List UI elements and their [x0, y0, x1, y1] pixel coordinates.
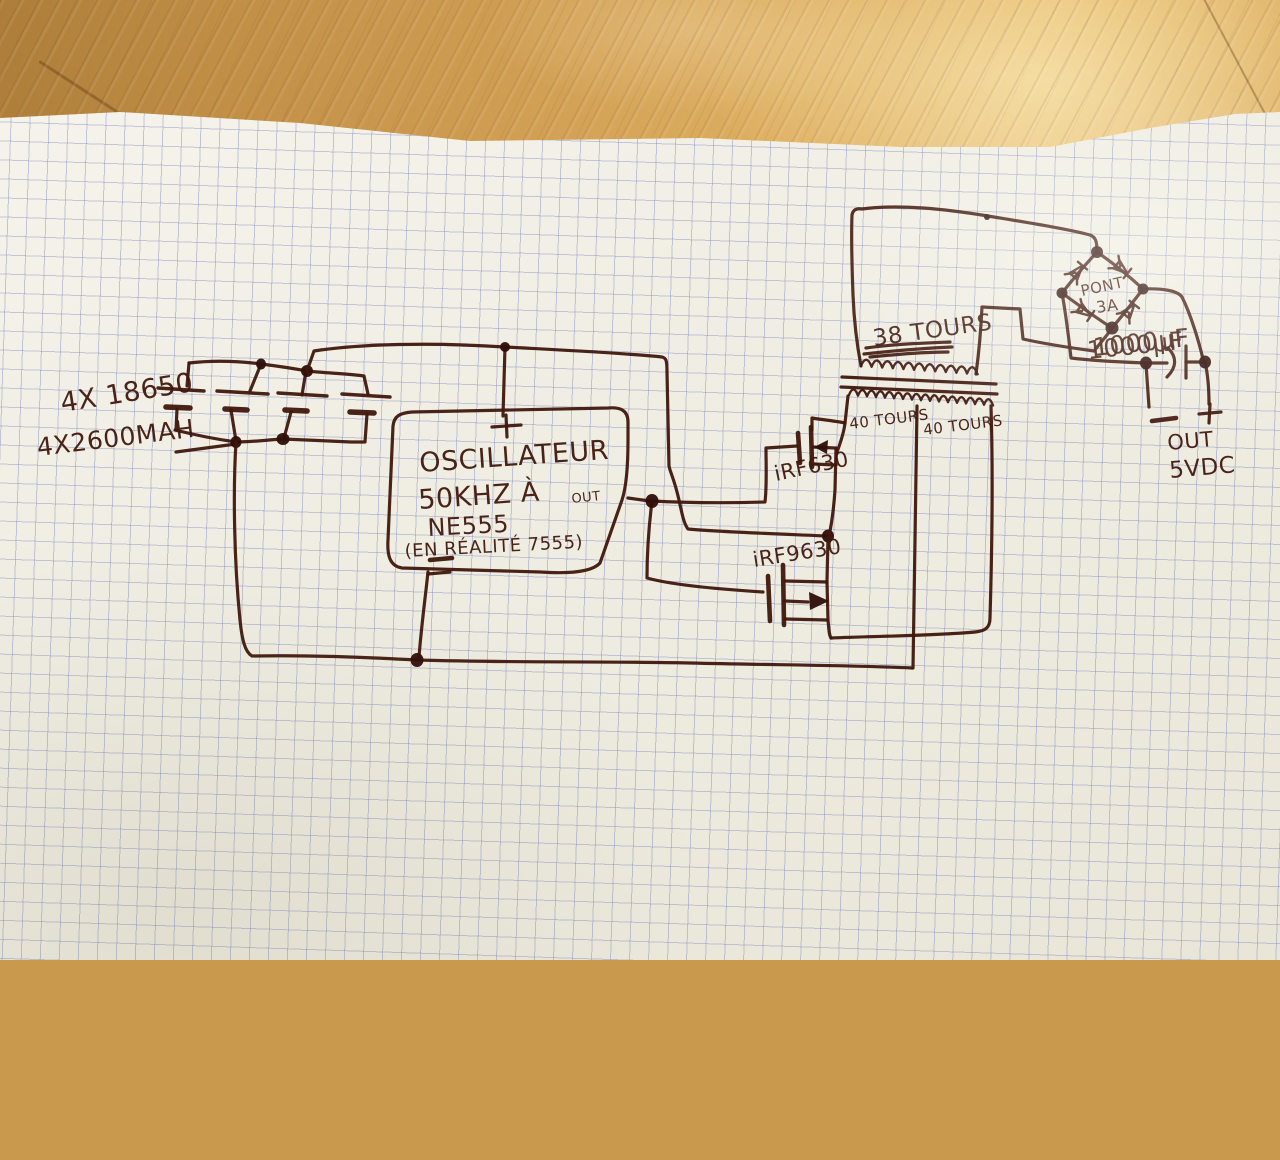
oscillator-label-line1: OSCILLATEUR [418, 435, 610, 479]
output-label-line1: OUT [1166, 427, 1214, 455]
battery-label-line1: 4X 18650 [58, 367, 195, 419]
hand-drawn-circuit-diagram: 4X 18650 4X2600MAH [0, 0, 1280, 960]
oscillator-out-label: OUT [571, 489, 602, 507]
transformer-symbol [841, 342, 997, 405]
oscillator-label-line2: 50KHZ À [417, 476, 540, 516]
circuit-wires [234, 207, 1209, 668]
output-label-line2: 5VDC [1168, 452, 1236, 484]
bridge-label-line2: 3A [1095, 295, 1120, 317]
battery-label-line2: 4X2600MAH [35, 414, 196, 462]
output-terminals [1152, 404, 1221, 423]
bridge-label-line1: PONT [1079, 273, 1125, 300]
mosfet-irf9630-label: iRF9630 [751, 534, 843, 572]
transformer-secondary-label: 38 TOURS [871, 309, 994, 351]
